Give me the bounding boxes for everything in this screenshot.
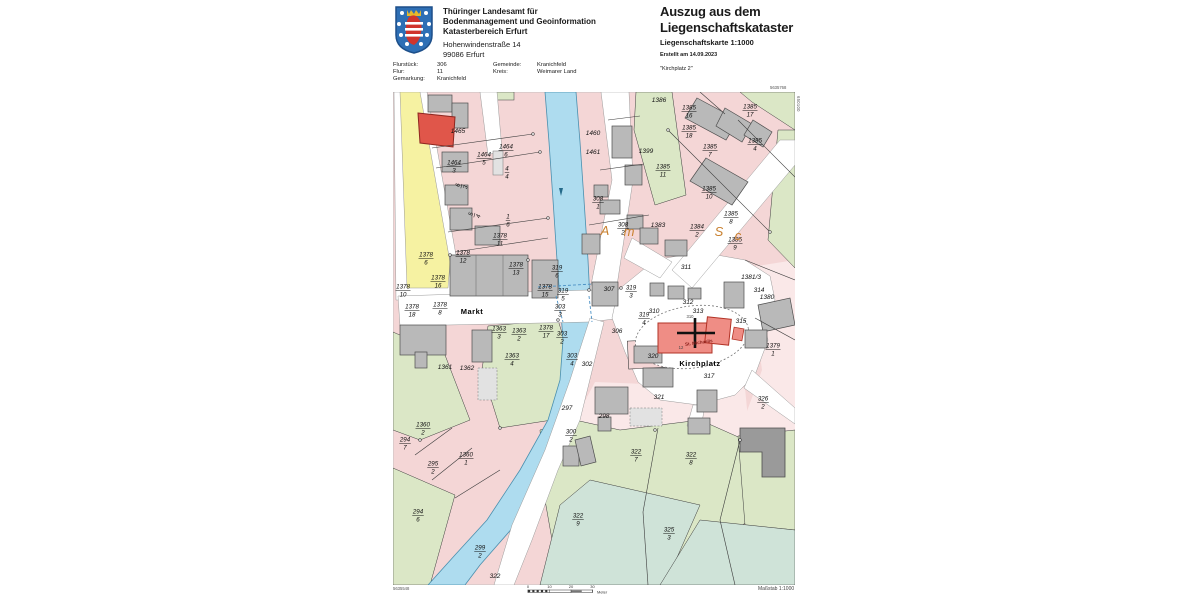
building <box>450 208 472 230</box>
street-letter: m <box>624 224 635 239</box>
label-text: 302 <box>582 361 593 368</box>
label-text: 4 <box>505 166 509 173</box>
building <box>688 418 710 434</box>
address-line: 99086 Erfurt <box>443 50 521 60</box>
label-text: 303 <box>555 304 566 311</box>
label-text: 322 <box>490 573 501 580</box>
label-text: 322 <box>573 513 584 520</box>
building <box>472 330 492 362</box>
parcel-label: 315 <box>736 318 747 325</box>
label-text: 1361 <box>438 364 453 371</box>
building <box>650 283 664 296</box>
label-text: 12 <box>460 257 467 264</box>
label-text: 1378 <box>419 252 433 259</box>
label-text: 17 <box>747 111 754 118</box>
label-text: 321 <box>654 394 665 401</box>
scalebar-hatch <box>541 590 543 592</box>
label-text: 1465 <box>451 128 466 135</box>
label-text: 1385 <box>703 144 717 151</box>
label-text: 4 <box>642 319 646 326</box>
label-text: 1363 <box>505 353 519 360</box>
building <box>625 165 642 185</box>
label-text: 326 <box>758 396 769 403</box>
agency-line: Thüringer Landesamt für <box>443 7 596 17</box>
label-text: 5 <box>561 295 565 302</box>
parcel-label: 314 <box>754 287 765 294</box>
scalebar-tick-label: 20 <box>569 584 574 589</box>
parcel-label: 320 <box>648 353 659 360</box>
agency-block: Thüringer Landesamt für Bodenmanagement … <box>443 7 596 37</box>
label-text: 1385 <box>748 138 762 145</box>
label-text: 4 <box>570 360 574 367</box>
label-text: A <box>600 223 610 238</box>
label-text: 11 <box>497 240 503 247</box>
label-text: m <box>624 224 635 239</box>
label-text: 310 <box>649 308 660 315</box>
label-text: 294 <box>412 509 424 516</box>
label-text: 1363 <box>512 328 526 335</box>
parcel-label: 1399 <box>639 148 654 155</box>
agency-line: Bodenmanagement und Geoinformation <box>443 17 596 27</box>
label-text: 303 <box>557 331 568 338</box>
label-text: 3 <box>629 292 633 299</box>
label-text: 1380 <box>760 294 775 301</box>
label-text: 1378 <box>539 325 553 332</box>
meta-value: 306 <box>437 62 447 68</box>
meta-label: Gemarkung: <box>393 76 425 82</box>
label-text: 1385 <box>656 164 670 171</box>
scalebar-unit: Meter <box>597 589 608 594</box>
building <box>428 95 452 112</box>
label-text: 1399 <box>639 148 654 155</box>
label-text: 1378 <box>405 304 419 311</box>
label-text: 8 <box>438 309 442 316</box>
label-text: 17 <box>543 332 550 339</box>
label-text: 294 <box>399 437 411 444</box>
label-text: 1385 <box>724 211 738 218</box>
label-text: 299 <box>474 545 486 552</box>
label-text: 295 <box>427 461 439 468</box>
label-text: 2 <box>430 468 435 475</box>
parcel-label: 1386 <box>652 97 667 104</box>
label-text: 10 <box>706 193 713 200</box>
scale-bar: 0102030Meter <box>525 584 615 597</box>
label-text: 1363 <box>492 326 506 333</box>
label-text: 319 <box>552 265 563 272</box>
label-text: 3 <box>452 167 456 174</box>
building <box>745 330 767 348</box>
label-text: 1385 <box>702 186 716 193</box>
survey-point <box>769 231 772 234</box>
building <box>668 286 684 299</box>
liegenschaftskataster-document: Thüringer Landesamt für Bodenmanagement … <box>0 0 1200 600</box>
label-text: Kirchplatz <box>679 359 720 368</box>
meta-value: Weimarer Land <box>537 69 577 75</box>
label-text: 322 <box>686 452 697 459</box>
label-text: 1378 <box>433 302 447 309</box>
parcel-label: 16 <box>506 214 511 229</box>
grid-label-bottom: 5635548 <box>393 586 409 591</box>
label-text: 297 <box>561 405 573 412</box>
street-letter: c <box>735 228 742 243</box>
survey-point <box>547 217 550 220</box>
parcel-label: 317 <box>704 373 715 380</box>
survey-point <box>539 151 542 154</box>
document-subtitle: Liegenschaftskarte 1:1000 <box>660 38 754 47</box>
building <box>595 387 628 414</box>
label-text: 4 <box>510 360 514 367</box>
label-text: 15 <box>542 291 549 298</box>
subject-label: "Kirchplatz 2" <box>660 66 693 72</box>
label-text: 1378 <box>538 284 552 291</box>
building <box>612 126 632 158</box>
label-text: 2 <box>559 338 564 345</box>
label-text: 320 <box>648 353 659 360</box>
label-text: 1464 <box>447 160 461 167</box>
parcel-label: 297 <box>561 405 573 412</box>
survey-point <box>449 254 452 257</box>
parcel-label: 321 <box>654 394 665 401</box>
label-text: 2 <box>568 436 573 443</box>
parcel-label: 307 <box>604 286 615 293</box>
meta-value: Kranichfeld <box>437 76 466 82</box>
label-text: 6 <box>555 272 559 279</box>
street-letter: A <box>600 223 610 238</box>
parcel-label: 1380 <box>760 294 775 301</box>
label-text: 306 <box>612 328 623 335</box>
meta-label: Flurstück: <box>393 62 418 68</box>
label-text: 2 <box>420 429 425 436</box>
address-line: Hohenwindenstraße 14 <box>443 40 521 50</box>
label-text: 1 <box>771 350 774 357</box>
parcel-label: 313 <box>693 308 704 315</box>
label-text: 1378 <box>431 275 445 282</box>
building <box>640 228 658 244</box>
survey-point <box>499 427 502 430</box>
parcel-label: 1362 <box>460 365 475 372</box>
label-text: 307 <box>604 286 615 293</box>
label-text: 4 <box>753 145 757 152</box>
label-text: 300 <box>566 429 577 436</box>
street-label: Kirchplatz <box>679 359 720 368</box>
meta-label: Gemeinde: <box>493 62 521 68</box>
building <box>563 446 579 466</box>
building <box>400 325 446 355</box>
label-text: 298 <box>598 413 610 420</box>
label-text: 8 <box>689 459 693 466</box>
survey-point <box>654 429 657 432</box>
scalebar-hatch <box>528 590 530 592</box>
label-text: 1385 <box>682 125 696 132</box>
label-text: 1378 <box>396 284 410 291</box>
label-text: 1385 <box>743 104 757 111</box>
label-text: 1464 <box>477 152 491 159</box>
label-text: 1464 <box>499 144 513 151</box>
meta-label: Flur: <box>393 69 405 75</box>
label-text: 319 <box>626 285 637 292</box>
survey-point <box>532 133 535 136</box>
scale-note: Maßstab 1:1000 <box>758 586 794 592</box>
label-text: 1 <box>596 203 599 210</box>
survey-point <box>620 287 623 290</box>
survey-point <box>667 129 670 132</box>
meta-value: 11 <box>437 69 443 75</box>
label-text: 16 <box>686 112 693 119</box>
label-text: S <box>715 224 724 239</box>
label-text: 1460 <box>586 130 601 137</box>
label-text: 2 <box>760 403 765 410</box>
label-text: 1385 <box>682 105 696 112</box>
parcel-label: 322 <box>490 573 501 580</box>
label-text: 3 <box>667 534 671 541</box>
building-outline <box>630 408 662 426</box>
label-text: 3 <box>558 311 562 318</box>
label-text: 2 <box>694 231 699 238</box>
scalebar-tick-label: 0 <box>527 584 530 589</box>
meta-label: Kreis: <box>493 69 508 75</box>
label-text: 303 <box>567 353 578 360</box>
parcel-label: 1460 <box>586 130 601 137</box>
label-text: 2 <box>477 552 482 559</box>
label-text: 1378 <box>456 250 470 257</box>
survey-point <box>588 289 591 292</box>
label-text: 1461 <box>586 149 601 156</box>
label-text: 308 <box>593 196 604 203</box>
label-text: 7 <box>708 151 712 158</box>
thuringia-coat-of-arms <box>393 5 435 55</box>
label-text: 8 <box>729 218 733 225</box>
building <box>724 282 744 308</box>
label-text: 313 <box>693 308 704 315</box>
church-chapel <box>732 327 744 341</box>
survey-point <box>557 319 560 322</box>
parcel-label: 44 <box>505 166 510 181</box>
street-label: Markt <box>461 307 484 316</box>
scalebar-hatch <box>545 590 547 592</box>
label-text: 1379 <box>766 343 780 350</box>
parcel-label: 312 <box>683 299 694 306</box>
label-text: 1386 <box>652 97 667 104</box>
parcel-label: 298 <box>598 413 610 420</box>
survey-point <box>419 439 422 442</box>
agency-line: Katasterbereich Erfurt <box>443 27 596 37</box>
label-text: 1383 <box>651 222 666 229</box>
building <box>688 288 701 299</box>
label-text: 9 <box>576 520 580 527</box>
building <box>665 240 687 256</box>
survey-point <box>527 259 530 262</box>
label-text: 16 <box>435 282 442 289</box>
scalebar-mid-mark <box>571 591 582 592</box>
label-text: 6 <box>506 221 510 228</box>
green-top-small <box>496 92 514 100</box>
parcel-label: 302 <box>582 361 593 368</box>
label-text: 6 <box>504 151 508 158</box>
label-text: 322 <box>631 449 642 456</box>
label-text: 319 <box>558 288 569 295</box>
label-text: 1381/3 <box>741 274 761 281</box>
label-text: 6 <box>416 516 420 523</box>
label-text: 11 <box>660 171 666 178</box>
label-text: 4 <box>505 173 509 180</box>
label-text: 12 <box>679 345 684 350</box>
survey-point <box>739 439 742 442</box>
building <box>493 151 503 175</box>
label-text: 325 <box>664 527 675 534</box>
label-text: 312 <box>683 299 694 306</box>
label-text: 3 <box>497 333 501 340</box>
label-text: 5 <box>482 159 486 166</box>
parcel-label: 1383 <box>651 222 666 229</box>
label-text: 1360 <box>416 422 430 429</box>
parcel-label: 310 <box>649 308 660 315</box>
parcel-label: 1461 <box>586 149 601 156</box>
scalebar-hatch <box>537 590 539 592</box>
scalebar-hatch <box>532 590 534 592</box>
scalebar-tick-label: 30 <box>590 584 595 589</box>
meta-value: Kranichfeld <box>537 62 566 68</box>
label-text: 1 <box>506 214 509 221</box>
grid-label-top: 5635768 <box>770 85 786 90</box>
label-text: 317 <box>704 373 715 380</box>
label-text: 1378 <box>509 262 523 269</box>
street-letter: S <box>715 224 724 239</box>
agency-address: Hohenwindenstraße 14 99086 Erfurt <box>443 40 521 59</box>
church-building <box>658 323 712 353</box>
label-text: 1384 <box>690 224 704 231</box>
cadastral-map: 1465146461464514643446354161378111378613… <box>393 92 795 585</box>
label-text: 10 <box>400 291 407 298</box>
label-text: 6 <box>424 259 428 266</box>
label-text: 13 <box>513 269 520 276</box>
grid-label-right: 650100 <box>796 96 801 112</box>
label-text: 7 <box>634 456 638 463</box>
label-text: 1362 <box>460 365 475 372</box>
parcel-label: 1361 <box>438 364 453 371</box>
building <box>582 234 600 254</box>
label-text: 18 <box>409 311 416 318</box>
building <box>415 352 427 368</box>
building <box>643 368 673 387</box>
red-building-nw <box>418 113 455 147</box>
parcel-label: 12 <box>679 345 684 350</box>
document-title: Auszug aus dem Liegenschaftskataster <box>660 4 793 36</box>
created-date: Erstellt am 14.09.2023 <box>660 52 717 58</box>
building-outline <box>478 368 497 400</box>
label-text: 2 <box>516 335 521 342</box>
label-text: 1 <box>464 459 467 466</box>
scalebar-tick-label: 10 <box>547 584 552 589</box>
parcel-label: 311 <box>681 264 692 271</box>
label-text: 7 <box>403 444 407 451</box>
label-text: 1378 <box>493 233 507 240</box>
label-text: 314 <box>754 287 765 294</box>
label-text: 311 <box>681 264 692 271</box>
parcel-label: 306 <box>612 328 623 335</box>
label-text: 18 <box>686 132 693 139</box>
parcel-label: 1381/3 <box>741 274 761 281</box>
label-text: 315 <box>736 318 747 325</box>
label-text: c <box>735 228 742 243</box>
label-text: 1360 <box>459 452 473 459</box>
label-text: Markt <box>461 307 484 316</box>
label-text: 9 <box>733 244 737 251</box>
parcel-label: 1465 <box>451 128 466 135</box>
building <box>697 390 717 412</box>
